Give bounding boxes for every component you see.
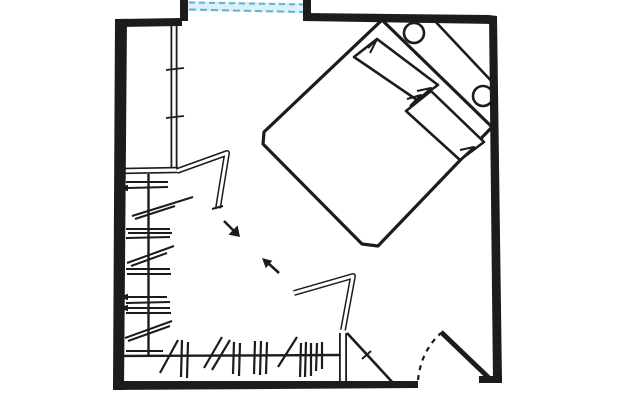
open-closet-panels [177, 153, 353, 330]
floorplan-sketch [0, 0, 642, 400]
floorplan-canvas [0, 0, 642, 400]
closet-partition-wall [166, 26, 184, 170]
entry-door [418, 332, 489, 380]
closet-shelf [121, 170, 178, 171]
door-side-partition [343, 333, 394, 384]
closet-bottom-hanging-clothes [123, 337, 341, 378]
walk-arrows [224, 221, 279, 273]
window [188, 1, 304, 13]
closet-left-hanging-clothes [119, 174, 193, 357]
